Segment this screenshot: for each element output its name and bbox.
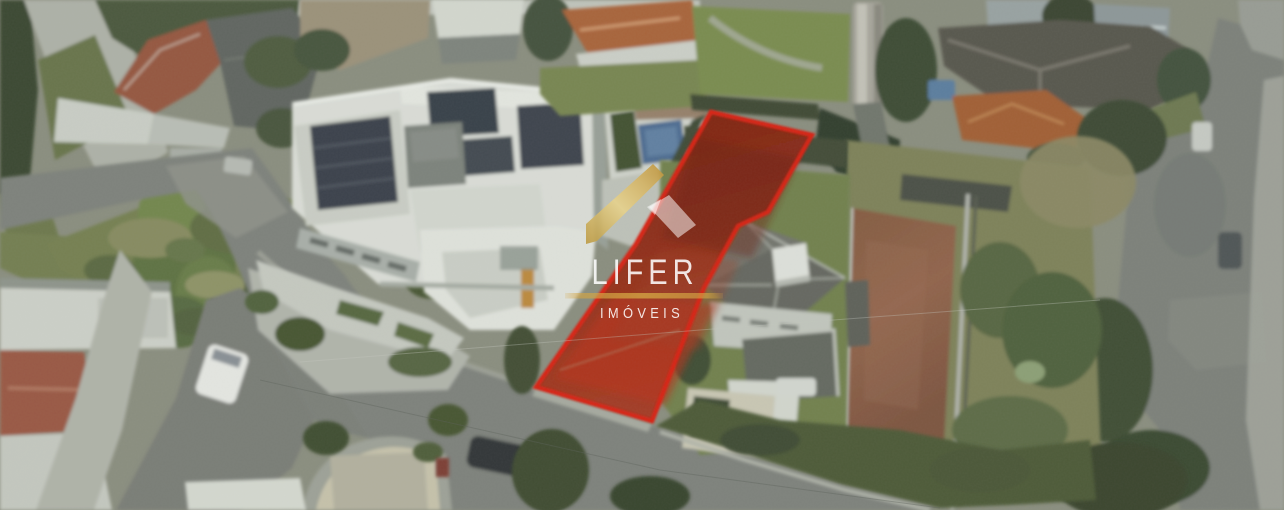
svg-text:IMÓVEIS: IMÓVEIS [600, 305, 684, 322]
svg-text:LIFER: LIFER [592, 253, 699, 292]
